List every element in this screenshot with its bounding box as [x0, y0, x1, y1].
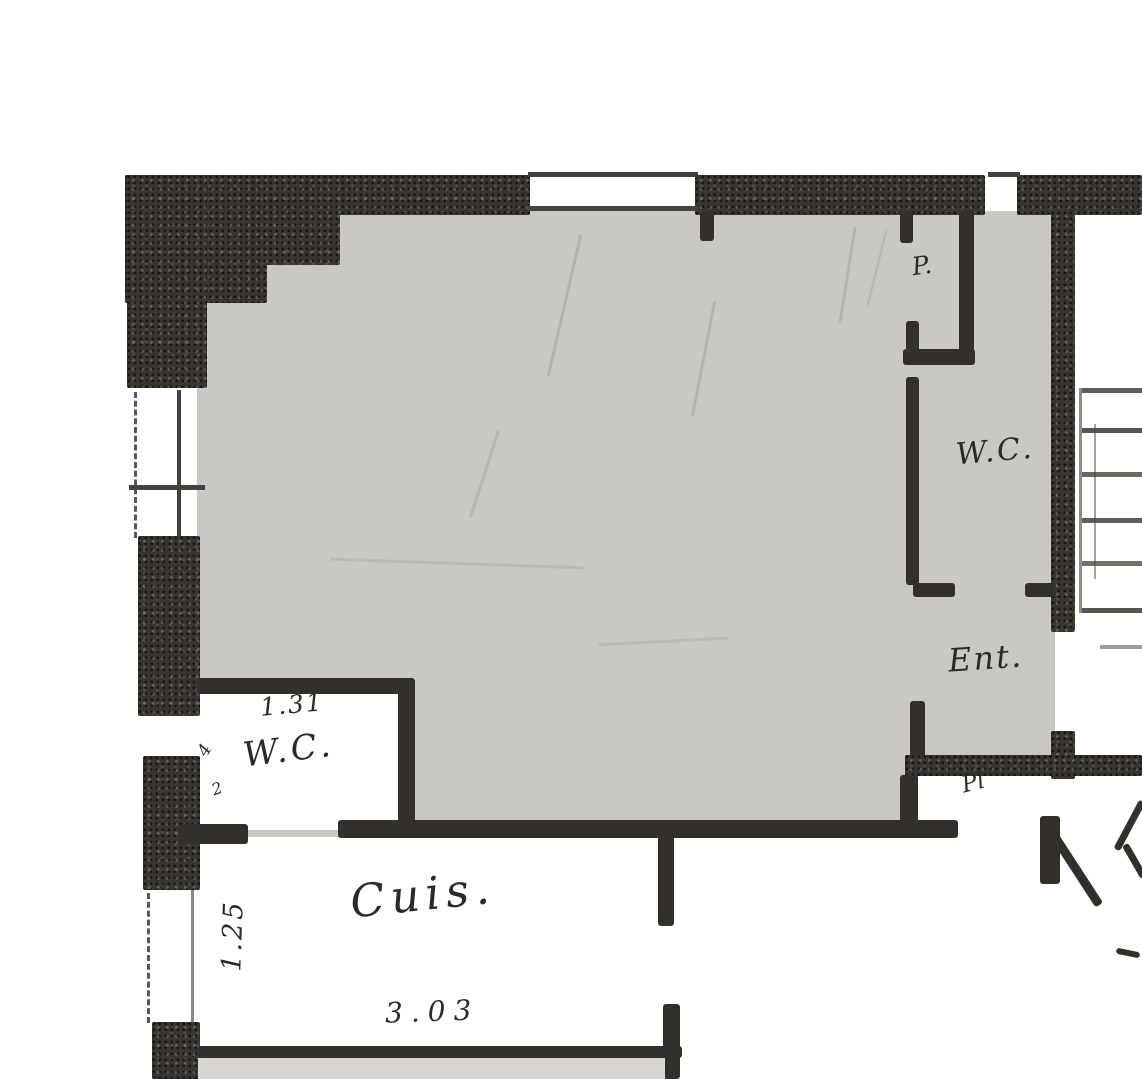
wall-closet-p-right — [959, 211, 974, 364]
stair-tread — [1082, 608, 1142, 613]
label-entry: Ent. — [947, 639, 1024, 676]
vent-gap-top-line — [988, 172, 1020, 177]
window-left-upper-dashed-line — [134, 392, 137, 538]
stair-stringer-line — [1079, 388, 1082, 613]
wall-left-upper — [127, 175, 207, 388]
label-kitchen: Cuis. — [348, 865, 497, 925]
window-left-lower-dashed-line — [147, 893, 150, 1023]
label-wc-left: W.C. — [241, 728, 336, 773]
wall-top-tick — [700, 211, 714, 241]
wall-kitchen-bottom — [198, 1046, 682, 1058]
window-top-outer-line — [528, 172, 698, 177]
edge-fragment-stroke — [1122, 843, 1142, 879]
wall-wc-left-right — [398, 678, 415, 828]
wall-wc-right-bottom-a — [913, 583, 955, 597]
window-top-inner-line — [528, 206, 698, 211]
stair-tread-faint — [1100, 645, 1142, 649]
window-left-upper-sill — [129, 485, 205, 490]
stair-tread — [1082, 388, 1142, 393]
edge-tick-mark — [1116, 948, 1141, 959]
wall-top-middle — [695, 175, 985, 215]
wall-wc-right-side — [906, 377, 919, 585]
stair-tread — [1082, 472, 1142, 477]
wall-wc-right-bottom-b — [1025, 583, 1055, 597]
wall-left-middle — [138, 536, 200, 716]
wall-kitchen-right-upper — [658, 836, 674, 926]
wall-kitchen-right-lower — [663, 1004, 680, 1079]
wall-entry-bottom — [905, 755, 1142, 776]
wall-right-upper — [1051, 211, 1075, 632]
stair-tread — [1082, 518, 1142, 523]
stair-inner-line — [1094, 424, 1096, 579]
floor-plan: P. W.C. Ent. Pl 1.31 W.C. 4 2 Cuis. 3.03… — [0, 0, 1142, 1079]
window-left-lower-frame — [191, 890, 194, 1024]
wall-door-jamb-right — [1040, 816, 1060, 884]
wall-closet-p-stub-low — [906, 321, 919, 365]
wall-left-lower — [143, 756, 200, 890]
window-left-upper-frame — [177, 390, 181, 540]
wall-room-bottom — [338, 820, 958, 838]
wall-left-bottom — [152, 1022, 200, 1079]
wall-closet-p-stub — [900, 211, 913, 243]
stair-tread — [1082, 428, 1142, 433]
label-dim-kitchen-width: 3.03 — [385, 996, 480, 1027]
stair-tread — [1082, 561, 1142, 566]
label-dim-wc-left-width: 1.31 — [259, 689, 325, 719]
wall-wc-left-outer-stub — [180, 824, 248, 844]
floor-strip-below-kitchen — [198, 1058, 665, 1079]
label-dim-kitchen-height: 1.25 — [217, 865, 249, 1006]
label-closet-p: P. — [910, 252, 933, 279]
wall-top-right — [1017, 175, 1142, 215]
label-closet-pl: Pl — [960, 770, 988, 798]
label-wc-right: W.C. — [955, 434, 1036, 471]
